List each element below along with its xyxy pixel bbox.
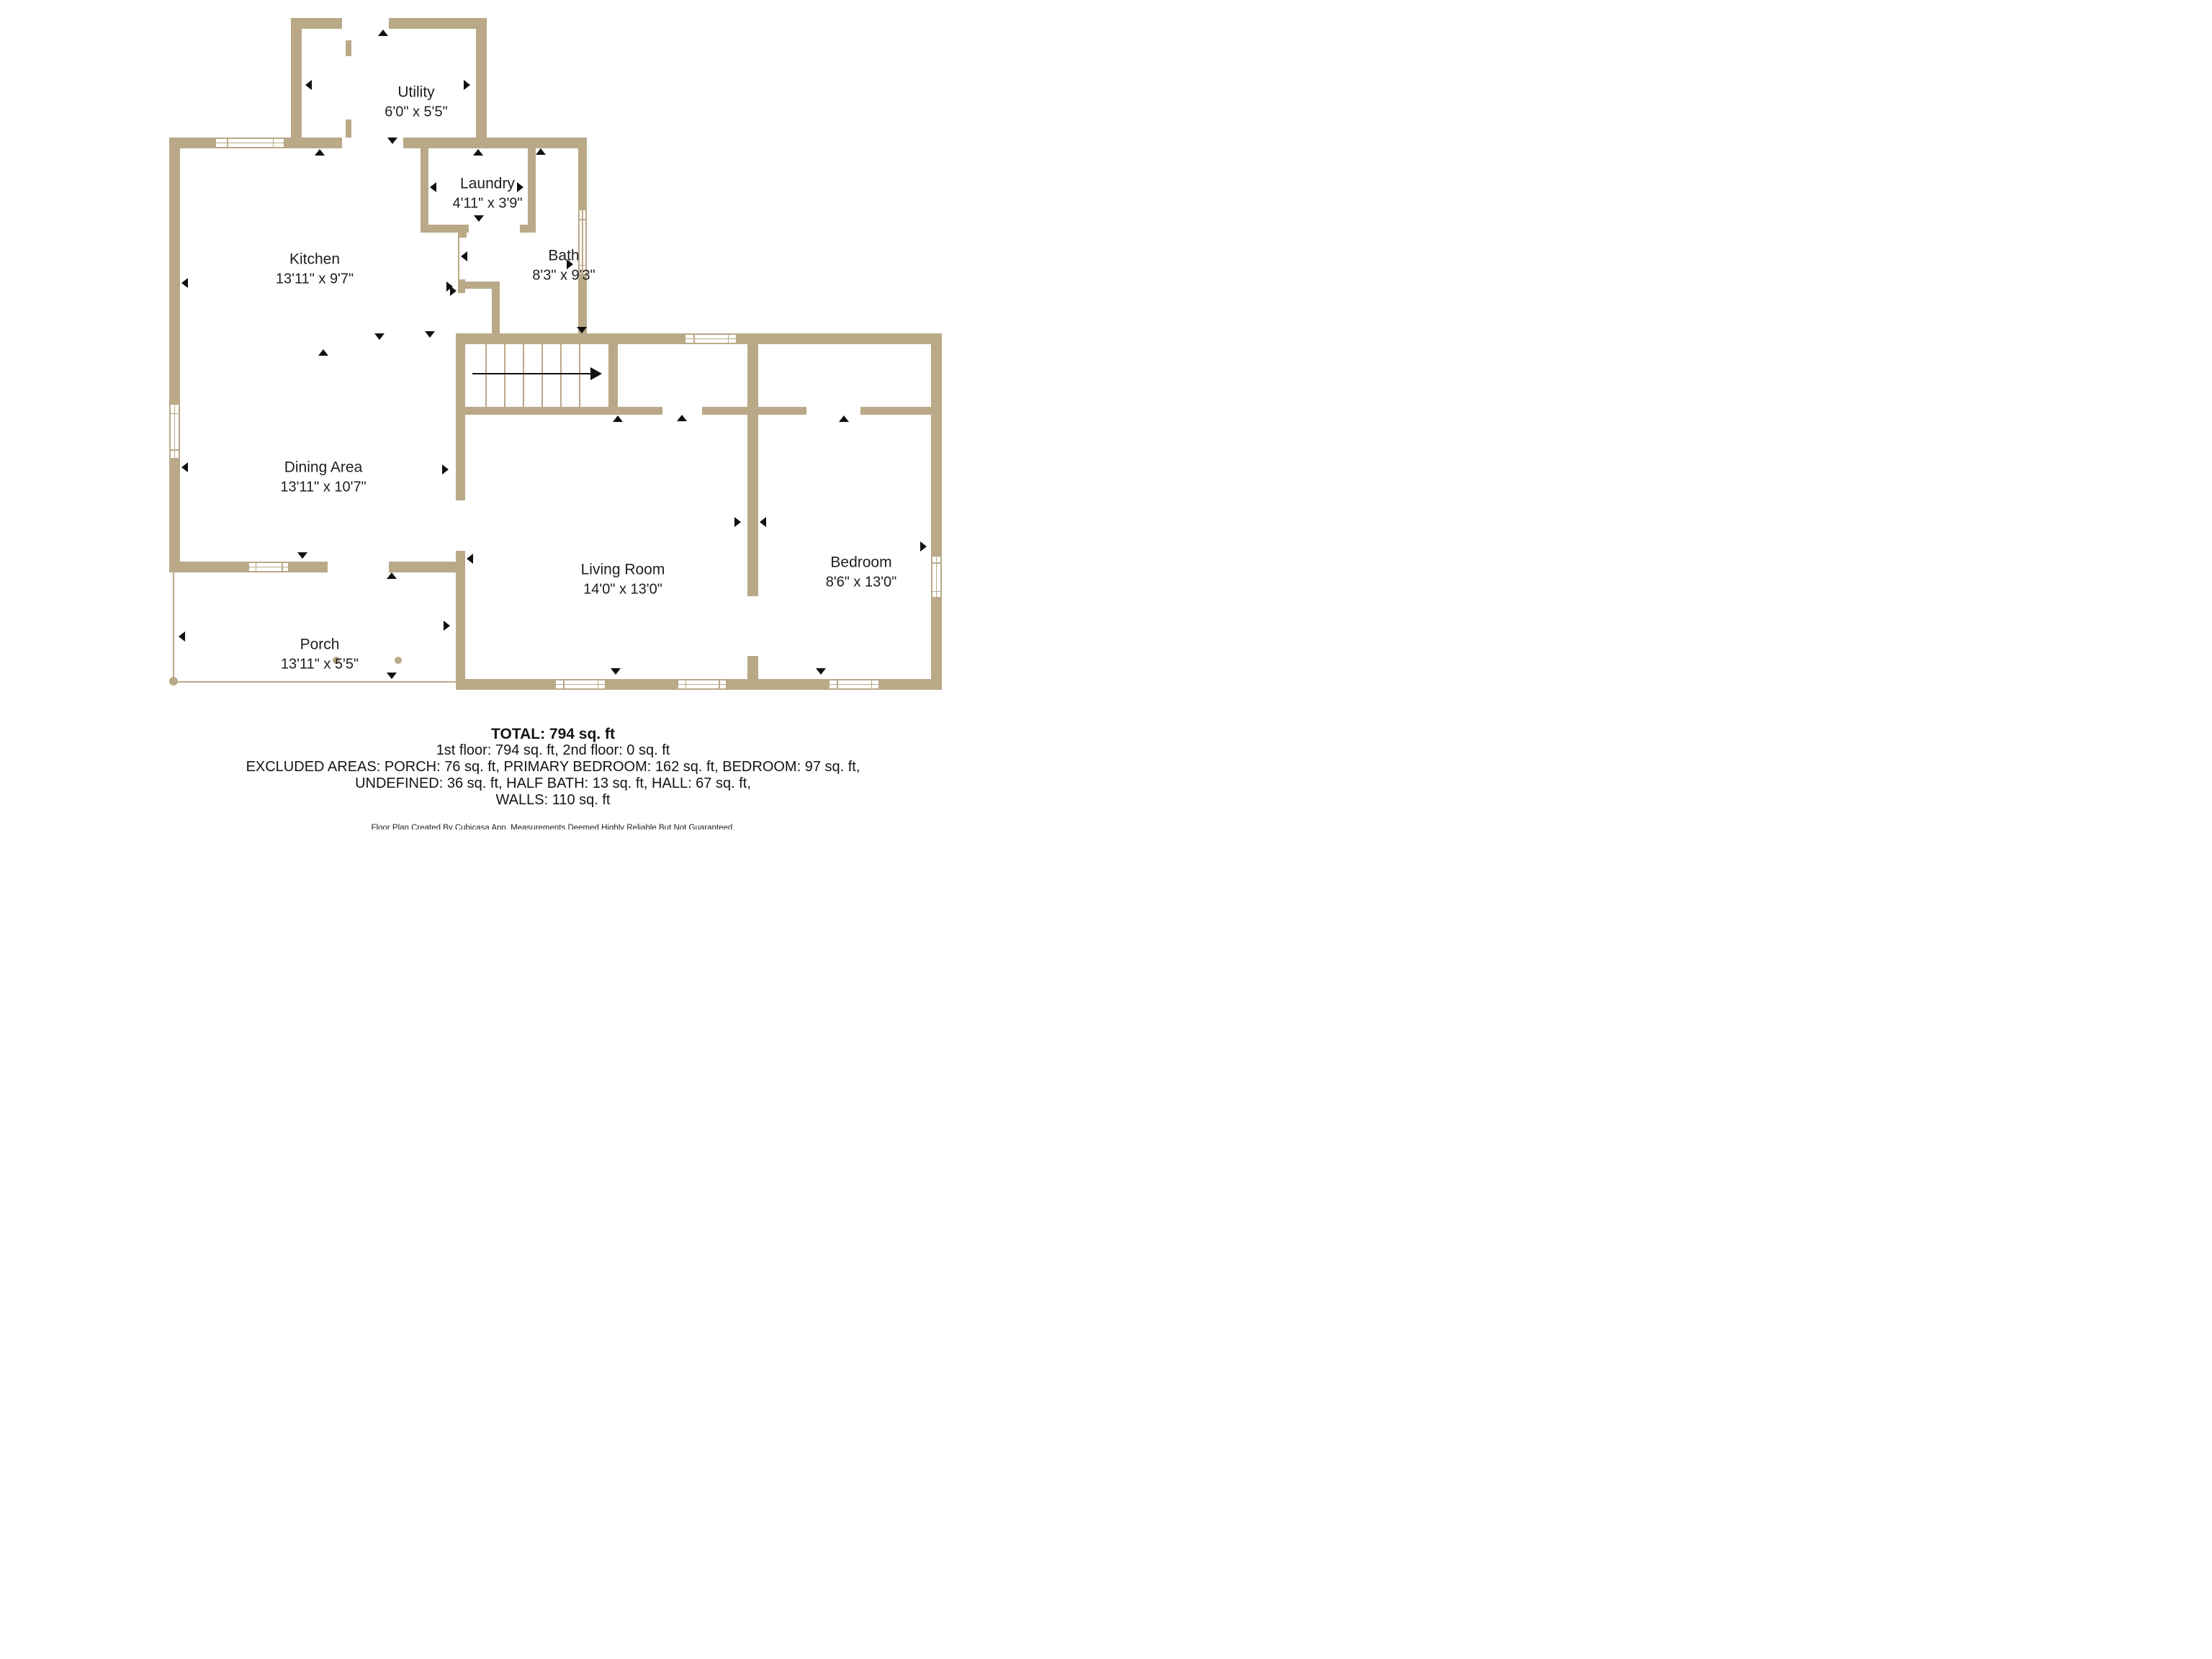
room-label-living: Living Room 14'0" x 13'0": [581, 560, 665, 600]
arrow-left-icon: [461, 251, 467, 261]
window-dining-bottom: [248, 562, 289, 572]
stairs-direction-line: [472, 373, 592, 374]
room-label-dining: Dining Area 13'11" x 10'7": [280, 458, 366, 498]
wall-kitchen-left-top: [169, 138, 180, 403]
wall-utility-top-right: [389, 18, 487, 29]
window-living-bottom-left: [554, 679, 606, 690]
arrow-down-icon: [577, 327, 587, 333]
room-label-bath: Bath 8'3" x 9'3": [532, 246, 595, 286]
room-dimensions: 13'11" x 9'7": [276, 270, 354, 289]
arrow-up-icon: [473, 149, 483, 156]
wall-utility-left: [291, 18, 302, 148]
wall-laundry-bottom-stub: [520, 225, 536, 233]
arrow-down-icon: [474, 215, 484, 222]
arrow-down-icon: [297, 552, 307, 559]
disclaimer-text: Floor Plan Created By Cubicasa App. Meas…: [0, 824, 1106, 829]
arrow-left-icon: [305, 80, 312, 90]
wall-hall-bottom-c: [860, 407, 942, 415]
wall-living-left-bottom: [456, 551, 465, 679]
wall-top-band-right: [403, 138, 587, 148]
room-dimensions: 13'11" x 10'7": [280, 478, 366, 498]
arrow-left-icon: [760, 517, 766, 527]
room-label-porch: Porch 13'11" x 5'5": [281, 635, 359, 675]
window-kitchen-left: [169, 403, 180, 459]
room-name: Bath: [532, 246, 595, 266]
room-label-bedroom: Bedroom 8'6" x 13'0": [826, 553, 897, 593]
staircase: [467, 344, 598, 407]
room-label-laundry: Laundry 4'11" x 3'9": [452, 174, 522, 214]
stairs-direction-arrow-icon: [590, 367, 602, 380]
arrow-up-icon: [839, 415, 849, 422]
arrow-left-icon: [181, 462, 188, 472]
porch-left-line: [173, 572, 174, 681]
room-name: Kitchen: [276, 250, 354, 270]
room-label-utility: Utility 6'0" x 5'5": [385, 83, 447, 122]
arrow-up-icon: [613, 415, 623, 422]
porch-post: [395, 657, 402, 664]
arrow-up-icon: [315, 149, 325, 156]
room-dimensions: 14'0" x 13'0": [581, 580, 665, 600]
wall-dining-bottom-a: [169, 562, 248, 572]
wall-bedroom-right-top: [931, 333, 942, 555]
wall-laundry-below-stub: [458, 233, 467, 238]
arrow-up-icon: [318, 349, 328, 356]
porch-post: [169, 677, 178, 685]
wall-living-bedroom-divider-top: [747, 344, 758, 596]
window-hall-top: [684, 333, 737, 344]
wall-utility-partition-stub-bottom: [346, 120, 351, 138]
arrow-right-icon: [446, 282, 453, 292]
arrow-up-icon: [677, 415, 687, 421]
arrow-up-icon: [387, 572, 397, 579]
wall-kitchen-left-bottom: [169, 459, 180, 562]
wall-bottom-a: [456, 679, 554, 690]
wall-bath-right-top: [578, 138, 587, 209]
total-area-text: TOTAL: 794 sq. ft: [0, 726, 1106, 742]
room-name: Utility: [385, 83, 447, 103]
wall-laundry-left: [421, 148, 428, 225]
wall-utility-partition-stub-top: [346, 40, 351, 56]
arrow-left-icon: [430, 182, 436, 192]
arrow-right-icon: [444, 621, 450, 631]
room-dimensions: 4'11" x 3'9": [452, 194, 522, 214]
arrow-left-icon: [179, 631, 185, 642]
wall-halfbath-stub: [458, 279, 465, 293]
floor-plan-page: Utility 6'0" x 5'5" Laundry 4'11" x 3'9"…: [0, 0, 1106, 829]
arrow-down-icon: [387, 673, 397, 679]
room-dimensions: 13'11" x 5'5": [281, 655, 359, 675]
arrow-left-icon: [181, 278, 188, 288]
wall-bottom-c: [727, 679, 828, 690]
arrow-down-icon: [374, 333, 385, 340]
window-bedroom-bottom: [828, 679, 880, 690]
arrow-down-icon: [425, 331, 435, 338]
wall-dining-bottom-b: [289, 562, 328, 572]
wall-stair-stub: [608, 344, 618, 407]
arrow-left-icon: [467, 554, 473, 564]
wall-laundry-bottom: [421, 225, 469, 233]
room-name: Laundry: [452, 174, 522, 194]
room-dimensions: 6'0" x 5'5": [385, 103, 447, 122]
wall-dining-bottom-c: [389, 562, 456, 572]
wall-utility-right: [476, 18, 487, 148]
wall-hall-top-right: [737, 333, 942, 344]
window-living-bottom-right: [677, 679, 727, 690]
room-name: Bedroom: [826, 553, 897, 573]
excluded-areas-text-1: EXCLUDED AREAS: PORCH: 76 sq. ft, PRIMAR…: [0, 759, 1106, 775]
arrow-down-icon: [816, 668, 826, 675]
arrow-right-icon: [734, 517, 741, 527]
arrow-right-icon: [920, 541, 927, 552]
arrow-up-icon: [536, 148, 546, 155]
window-kitchen-top: [215, 138, 285, 148]
walls-area-text: WALLS: 110 sq. ft: [0, 792, 1106, 809]
wall-bedroom-right-bottom: [931, 598, 942, 690]
room-dimensions: 8'3" x 9'3": [532, 266, 595, 286]
excluded-areas-text-2: UNDEFINED: 36 sq. ft, HALF BATH: 13 sq. …: [0, 775, 1106, 792]
wall-bottom-d: [880, 679, 942, 690]
room-name: Porch: [281, 635, 359, 655]
arrow-down-icon: [611, 668, 621, 675]
arrow-right-icon: [442, 464, 449, 475]
bath-open-boundary-line: [458, 238, 459, 282]
wall-halfbath-right: [492, 289, 500, 338]
arrow-down-icon: [387, 138, 397, 144]
wall-bottom-b: [606, 679, 677, 690]
room-name: Dining Area: [280, 458, 366, 478]
wall-laundry-right: [528, 148, 536, 225]
wall-hall-bottom-a: [456, 407, 662, 415]
wall-kitchen-top-b: [285, 138, 342, 148]
room-name: Living Room: [581, 560, 665, 580]
room-label-kitchen: Kitchen 13'11" x 9'7": [276, 250, 354, 289]
window-bedroom-right: [931, 555, 942, 598]
floor-areas-text: 1st floor: 794 sq. ft, 2nd floor: 0 sq. …: [0, 742, 1106, 759]
room-dimensions: 8'6" x 13'0": [826, 573, 897, 593]
arrow-up-icon: [378, 30, 388, 36]
summary-footer: TOTAL: 794 sq. ft 1st floor: 794 sq. ft,…: [0, 726, 1106, 829]
wall-hall-top-left: [456, 333, 684, 344]
porch-bottom-line: [173, 681, 456, 683]
wall-living-left-top: [456, 333, 465, 500]
arrow-right-icon: [464, 80, 470, 90]
